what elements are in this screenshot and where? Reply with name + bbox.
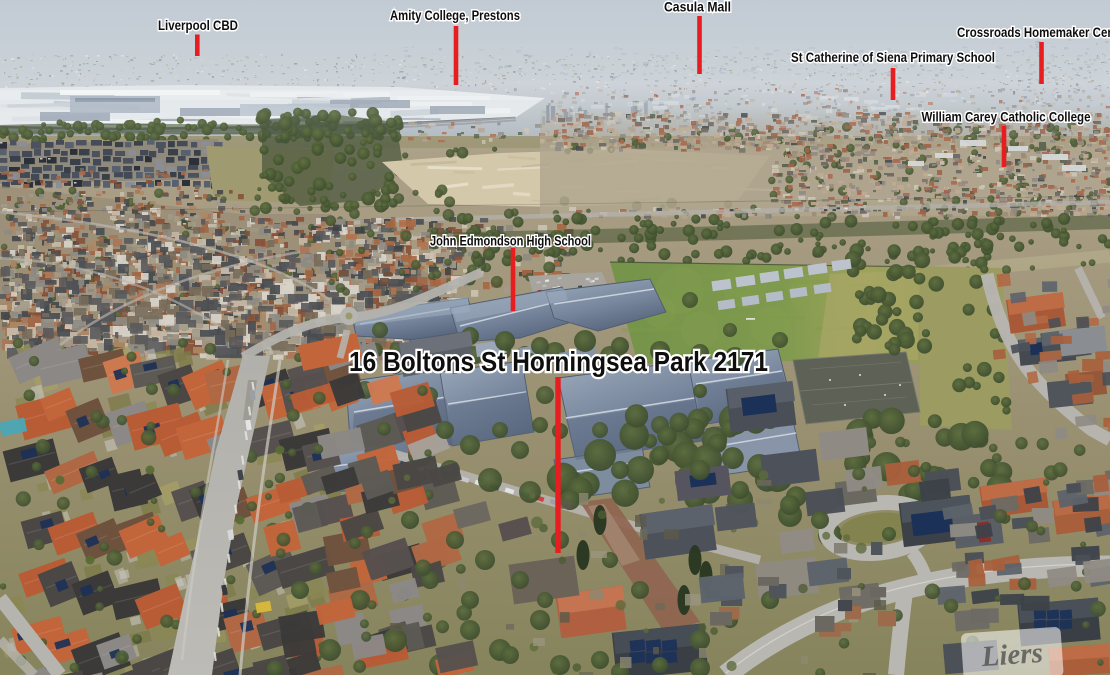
svg-text:Amity College, Prestons: Amity College, Prestons — [390, 8, 520, 23]
svg-text:William Carey Catholic College: William Carey Catholic College — [922, 110, 1091, 125]
svg-text:16 Boltons St Horningsea Park: 16 Boltons St Horningsea Park 2171 — [349, 346, 768, 377]
svg-text:Liers: Liers — [980, 637, 1044, 673]
svg-text:St Catherine of Siena Primary: St Catherine of Siena Primary School — [791, 50, 995, 65]
svg-text:Casula Mall: Casula Mall — [664, 0, 731, 15]
svg-text:Crossroads Homemaker Centre: Crossroads Homemaker Centre — [957, 25, 1110, 40]
svg-text:Liverpool CBD: Liverpool CBD — [158, 18, 238, 33]
svg-text:John Edmondson High School: John Edmondson High School — [430, 234, 591, 249]
